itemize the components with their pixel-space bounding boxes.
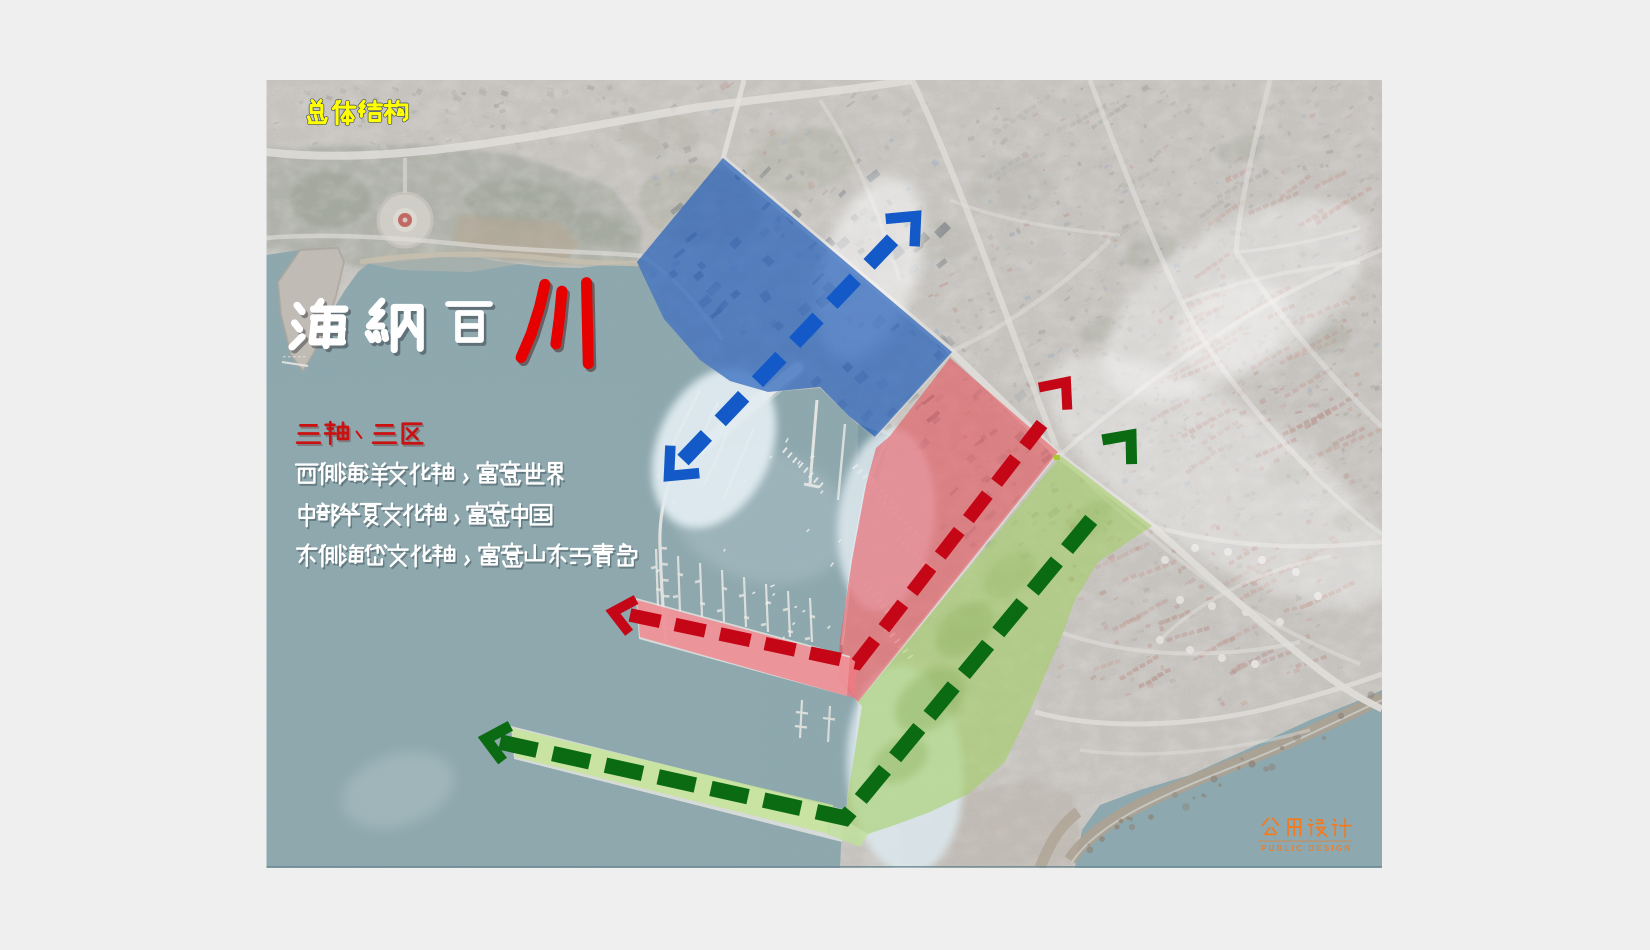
- svg-text:PUBLIC DESIGN: PUBLIC DESIGN: [1261, 844, 1352, 853]
